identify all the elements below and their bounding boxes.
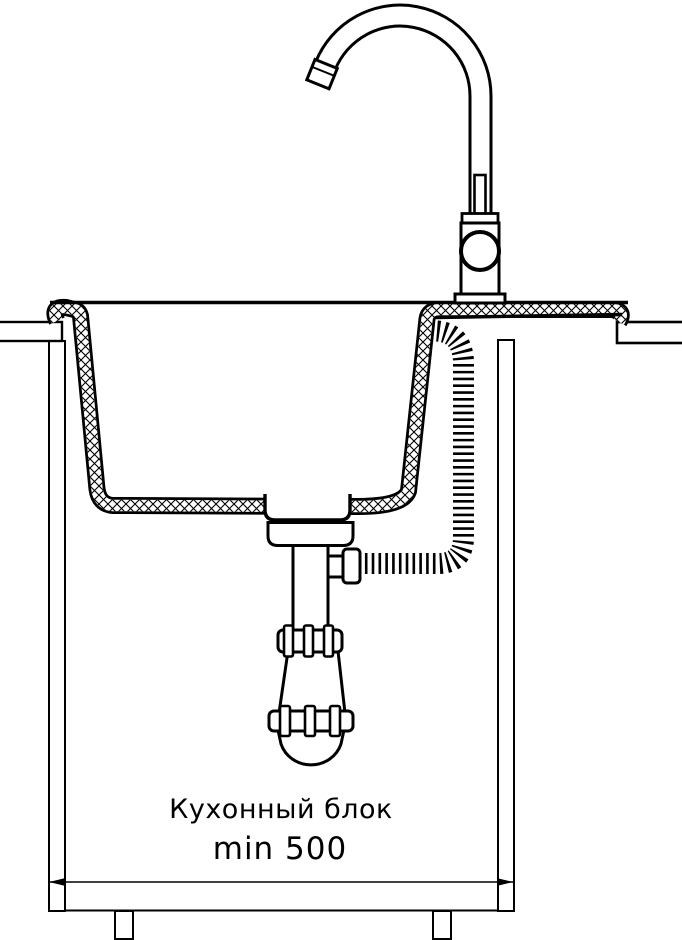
drain-tailpipe — [293, 540, 328, 632]
coupling-rib — [305, 706, 315, 736]
faucet — [307, 16, 505, 303]
faucet-handle-lever — [475, 175, 486, 215]
cabinet-block-label: Кухонный блок — [169, 794, 393, 825]
faucet-base-plate — [455, 294, 505, 303]
coupling-rib — [330, 706, 340, 736]
cabinet-foot-left — [115, 911, 133, 939]
drain-seat-recess — [265, 494, 350, 520]
sink-section-core — [55, 307, 621, 506]
sink-installation-diagram: Кухонный блок min 500 — [0, 0, 682, 940]
drain-flange — [268, 523, 353, 546]
countertop-section-left — [0, 322, 62, 341]
countertop — [0, 322, 682, 343]
faucet-spout-core — [325, 16, 480, 215]
coupling-rib — [324, 626, 333, 657]
sink-cross-section-hatch — [55, 307, 621, 506]
siphon-cone — [279, 651, 345, 713]
technical-drawing: Кухонный блок min 500 — [0, 0, 682, 940]
cabinet-wall-right — [498, 340, 514, 911]
coupling-rib — [284, 626, 293, 657]
hose-connection-nut — [343, 549, 360, 583]
coupling-rib — [304, 626, 313, 657]
dimension-annotation: Кухонный блок min 500 — [49, 794, 513, 886]
cabinet-foot-right — [433, 911, 451, 939]
coupling-rib — [280, 706, 290, 736]
drain-assembly — [265, 494, 360, 765]
sink-section-outline — [55, 307, 621, 506]
min-width-label: min 500 — [213, 831, 347, 867]
sink-basin — [50, 303, 628, 507]
faucet-joint-circle — [461, 232, 499, 270]
cabinet-wall-left — [49, 341, 65, 911]
